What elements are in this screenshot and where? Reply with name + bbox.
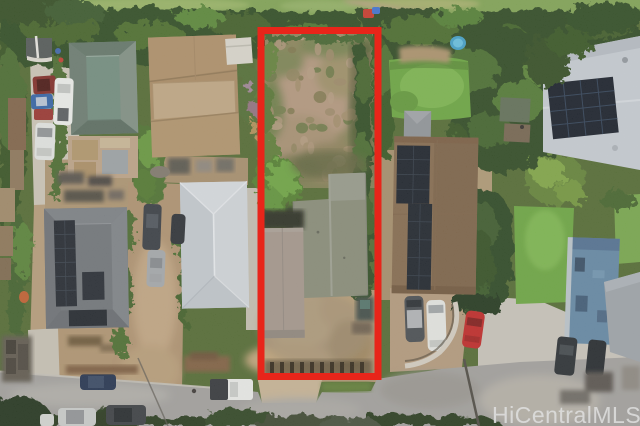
svg-text:HiCentralMLS: HiCentralMLS: [492, 402, 640, 426]
